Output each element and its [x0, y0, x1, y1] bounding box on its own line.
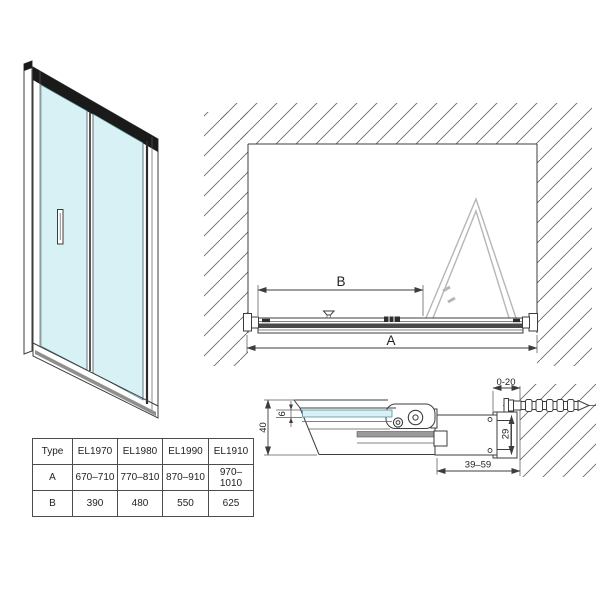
- wall-bracket-left: [244, 314, 259, 332]
- table-row-b: B 390 480 550 625: [33, 491, 254, 517]
- table-header-el1980: EL1980: [118, 439, 163, 465]
- dim-0-20-label: 0-20: [496, 377, 515, 388]
- dimension-a: A: [247, 333, 537, 353]
- dim-29-label: 29: [501, 429, 512, 440]
- table-cell: 870–910: [163, 465, 209, 491]
- plan-view: B A: [204, 103, 592, 366]
- track-clamp-symbol: [324, 311, 335, 318]
- table-cell: 625: [209, 491, 254, 517]
- table-cell: 480: [118, 491, 163, 517]
- dim-a-label: A: [386, 333, 395, 348]
- size-table: Type EL1970 EL1980 EL1990 EL1910 A 670–7…: [32, 438, 254, 517]
- row-a-label: A: [33, 465, 73, 491]
- dimension-29: 29: [501, 416, 512, 455]
- dimension-39-59: 39–59: [437, 458, 520, 475]
- wall-bracket-right: [523, 314, 538, 332]
- table-cell: 670–710: [73, 465, 118, 491]
- dimension-b: B: [258, 274, 423, 316]
- door-handle: [58, 210, 64, 245]
- glass-section: [303, 410, 393, 417]
- table-cell: 770–810: [118, 465, 163, 491]
- glass-panel-left: [41, 85, 87, 370]
- section-wall-hatching: [520, 384, 596, 477]
- section-view: 40 6 0-20 29 39–59: [258, 377, 596, 477]
- table-header-row: Type EL1970 EL1980 EL1990 EL1910: [33, 439, 254, 465]
- front-view-bifold-door: [24, 61, 158, 418]
- table-header-el1970: EL1970: [73, 439, 118, 465]
- dim-b-label: B: [336, 274, 345, 289]
- table-cell: 550: [163, 491, 209, 517]
- table-header-el1990: EL1990: [163, 439, 209, 465]
- folded-door-open-position: [426, 199, 516, 318]
- technical-drawing-page: B A: [0, 0, 600, 600]
- row-b-label: B: [33, 491, 73, 517]
- table-row-a: A 670–710 770–810 870–910 970–1010: [33, 465, 254, 491]
- dim-6-label: 6: [277, 411, 288, 416]
- wall-profile-bar: [24, 61, 32, 354]
- dim-39-59-label: 39–59: [465, 460, 491, 471]
- bottom-track: [258, 317, 523, 334]
- table-header-type: Type: [33, 439, 73, 465]
- wall-edges: [248, 144, 537, 333]
- glass-panel-right: [93, 114, 143, 400]
- table-header-el1910: EL1910: [209, 439, 254, 465]
- table-cell: 970–1010: [209, 465, 254, 491]
- dim-40-label: 40: [258, 422, 269, 433]
- table-cell: 390: [73, 491, 118, 517]
